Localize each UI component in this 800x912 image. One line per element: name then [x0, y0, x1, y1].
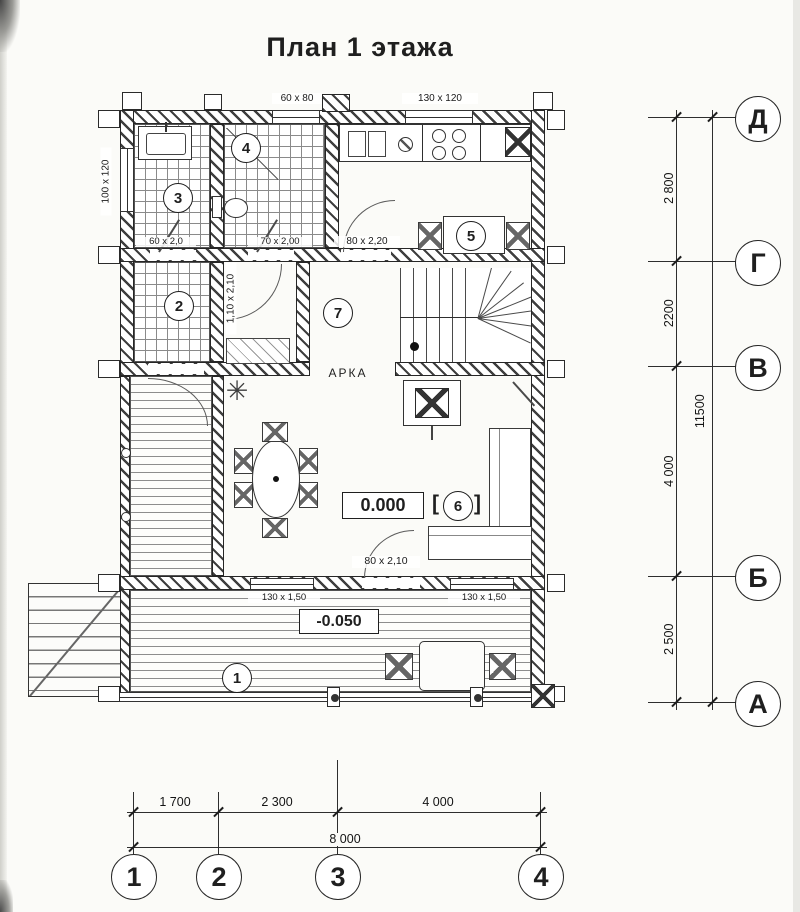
wall-hall-living	[212, 376, 224, 576]
room2-door-label: 1,10 x 2,10	[226, 263, 237, 335]
grid-col-3: 3	[315, 854, 361, 900]
wall-post-dot	[121, 512, 131, 522]
log-stub	[547, 110, 565, 130]
scan-artifact	[0, 0, 20, 52]
dining-chair	[262, 518, 288, 538]
grid-col-4: 4	[518, 854, 564, 900]
log-stub	[98, 686, 120, 702]
wall-room4-kitchen	[325, 124, 339, 248]
plant-icon: ✳	[222, 376, 252, 406]
window-mullion	[127, 149, 128, 211]
vent-window	[272, 110, 320, 124]
log-stub	[547, 246, 565, 264]
porch-diagonal	[29, 584, 122, 697]
terrace-door-arc	[364, 530, 414, 578]
corridor-bench	[226, 338, 290, 364]
col-dim-1-2: 1 700	[145, 796, 205, 809]
sofa-seat	[428, 526, 532, 560]
log-stub	[98, 110, 120, 128]
vent-window-label: 60 x 80	[272, 93, 322, 104]
dim-line-rows-total	[712, 110, 713, 710]
sauna-door-opening	[150, 250, 196, 260]
log-stub	[547, 360, 565, 378]
wall-room2-corridor	[210, 262, 224, 362]
window-mullion	[273, 117, 319, 118]
kitchen-appliance-icon	[505, 127, 531, 157]
fireplace-firebox	[415, 388, 449, 418]
window-mullion	[251, 584, 313, 585]
row-dim-g-v: 2200	[663, 280, 676, 346]
living-window-left-label: 130 x 1,50	[248, 593, 320, 603]
row-dim-total: 11500	[694, 378, 707, 444]
log-stub	[98, 360, 120, 378]
window-mullion	[451, 584, 513, 585]
stove-burner-icon	[432, 129, 446, 143]
room3-left-window	[120, 148, 134, 212]
toilet-bowl	[224, 198, 248, 218]
floor-plan-sheet: План 1 этажа 60 x 80 130 x	[0, 0, 800, 912]
row-axis-line	[648, 366, 736, 367]
room-number-1: 1	[222, 663, 252, 693]
washbasin	[138, 126, 192, 160]
dining-chair	[299, 482, 318, 508]
washbasin-inner	[146, 133, 186, 155]
row-axis-line	[648, 117, 736, 118]
tap-icon	[165, 122, 167, 132]
grid-col-2: 2	[196, 854, 242, 900]
log-stub	[98, 574, 120, 592]
scan-artifact	[0, 880, 13, 912]
grid-row-v: В	[735, 345, 781, 391]
kitchen-window	[405, 110, 473, 124]
terrace-door-opening	[362, 578, 420, 588]
level-terrace-label: -0.050	[299, 609, 379, 634]
veranda-post	[470, 687, 483, 707]
grid-row-g: Г	[735, 240, 781, 286]
fireplace	[403, 380, 461, 426]
kitchen-counter	[339, 124, 531, 162]
row-axis-line	[648, 702, 736, 703]
dining-chair	[234, 482, 253, 508]
grid-col-1: 1	[111, 854, 157, 900]
shower-door-label: 70 x 2,00	[248, 237, 312, 247]
scan-edge-left	[0, 0, 7, 912]
sink-basin	[368, 131, 386, 157]
stove-burner-icon	[452, 146, 466, 160]
shower-door-opening	[248, 250, 294, 260]
wall-row-v-stairs	[395, 362, 545, 376]
hallway-door-opening	[148, 364, 204, 374]
room-number-3: 3	[163, 183, 193, 213]
faucet-icon	[398, 137, 413, 152]
terrace-door-label: 80 x 2,10	[352, 556, 420, 568]
stove-burner-icon	[452, 129, 466, 143]
counter-divider	[422, 125, 423, 161]
arch-label: АРКА	[316, 366, 380, 380]
stair-landing-line	[400, 317, 478, 318]
wall-room3-room4	[210, 124, 224, 248]
staircase	[400, 268, 531, 362]
room-number-2: 2	[164, 291, 194, 321]
col-axis-line	[218, 792, 219, 854]
room6-bracket-right: ]	[474, 492, 481, 516]
grid-row-b: Б	[735, 555, 781, 601]
kitchen-window-label: 130 x 120	[402, 93, 478, 104]
post-dot	[474, 694, 482, 702]
window-mullion	[406, 117, 472, 118]
veranda-table	[419, 641, 485, 691]
veranda-chair	[385, 653, 413, 680]
dining-chair	[262, 422, 288, 442]
corner-log-joint	[531, 684, 555, 708]
wall-top	[120, 110, 545, 124]
post-dot	[331, 694, 339, 702]
log-stub	[547, 574, 565, 592]
row-dim-d-g: 2 800	[663, 155, 676, 221]
living-window-right	[450, 578, 514, 590]
sauna-door-label: 60 x 2,0	[136, 237, 196, 247]
log-stub	[533, 92, 553, 110]
dining-table-dot	[273, 476, 279, 482]
room-number-6: 6	[443, 491, 473, 521]
col-dim-3-4: 4 000	[408, 796, 468, 809]
room6-bracket-left: [	[432, 492, 439, 516]
log-stub	[122, 92, 142, 110]
row-axis-line	[648, 576, 736, 577]
toilet-tank	[212, 196, 222, 218]
stove-burner-icon	[432, 146, 446, 160]
room-number-5: 5	[456, 221, 486, 251]
chimney-stub	[322, 94, 350, 112]
fireplace-stem	[431, 426, 433, 440]
page-title: План 1 этажа	[220, 32, 500, 63]
log-stub	[204, 94, 222, 110]
dim-line-rows	[676, 110, 677, 710]
row-axis-line	[648, 261, 736, 262]
living-window-left	[250, 578, 314, 590]
room-number-7: 7	[323, 298, 353, 328]
living-window-right-label: 130 x 1,50	[448, 593, 520, 603]
dining-chair	[234, 448, 253, 474]
room-number-4: 4	[231, 133, 261, 163]
scan-edge-right	[793, 0, 800, 912]
grid-row-a: А	[735, 681, 781, 727]
veranda-post	[327, 687, 340, 707]
row-dim-b-a: 2 500	[663, 606, 676, 672]
room3-window-label: 100 x 120	[101, 148, 112, 216]
dim-line-cols-total	[127, 847, 547, 848]
log-stub	[98, 246, 120, 264]
counter-divider	[480, 125, 481, 161]
stair-newel-dot	[410, 342, 419, 351]
wall-left-lower	[120, 376, 130, 700]
row-dim-v-b: 4 000	[663, 438, 676, 504]
sink-basin	[348, 131, 366, 157]
col-dim-total: 8 000	[315, 833, 375, 846]
wall-post-dot	[121, 448, 131, 458]
porch-steps	[28, 583, 122, 697]
kitchen-chair	[418, 222, 442, 250]
col-dim-2-3: 2 300	[247, 796, 307, 809]
kitchen-door-label: 80 x 2,20	[334, 236, 400, 247]
sofa-cushion-line	[429, 535, 531, 536]
dining-chair	[299, 448, 318, 474]
level-ground-label: 0.000	[342, 492, 424, 519]
grid-row-d: Д	[735, 96, 781, 142]
veranda-chair	[489, 653, 516, 680]
wall-corridor-hall	[296, 262, 310, 362]
kitchen-chair	[506, 222, 530, 250]
